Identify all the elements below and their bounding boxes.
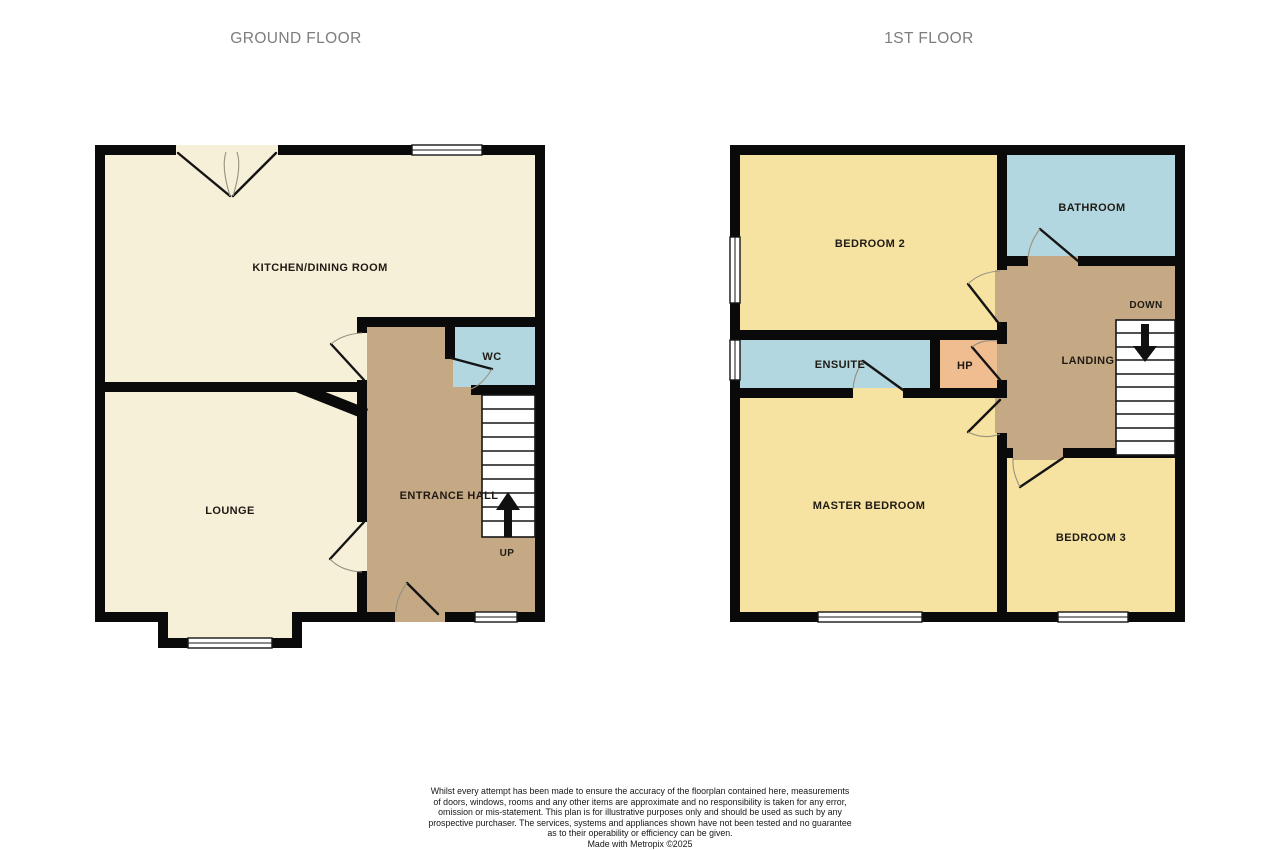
floorplan-canvas: KITCHEN/DINING ROOM LOUNGE ENTRANCE HALL… <box>0 0 1280 845</box>
room-label-kitchen: KITCHEN/DINING ROOM <box>252 262 387 274</box>
interior-wall <box>357 380 367 522</box>
room-lounge <box>105 392 357 612</box>
interior-wall <box>357 317 367 333</box>
interior-wall <box>740 388 853 398</box>
disclaimer-credit: Made with Metropix ©2025 <box>0 839 1280 850</box>
interior-wall <box>1005 256 1028 266</box>
stairs-down-label: DOWN <box>1129 300 1162 311</box>
room-label-entrance-hall: ENTRANCE HALL <box>400 490 499 502</box>
interior-wall <box>997 433 1007 612</box>
interior-wall <box>445 327 455 359</box>
bathroom-door-gap <box>1028 256 1078 268</box>
interior-wall <box>740 330 1007 340</box>
room-label-bedroom2: BEDROOM 2 <box>835 238 905 250</box>
room-label-lounge: LOUNGE <box>205 505 254 517</box>
hp-door-gap <box>997 344 1007 380</box>
interior-wall <box>1078 256 1175 266</box>
disclaimer-line: Whilst every attempt has been made to en… <box>0 786 1280 797</box>
bedroom3-door-gap <box>1013 448 1063 460</box>
room-label-hp: HP <box>957 360 973 372</box>
staircase-up <box>482 395 535 537</box>
room-label-master-bedroom: MASTER BEDROOM <box>813 500 926 512</box>
french-door-gap <box>176 145 278 155</box>
window <box>730 340 740 380</box>
room-label-bathroom: BATHROOM <box>1058 202 1125 214</box>
window <box>1058 612 1128 622</box>
room-label-wc: WC <box>482 351 501 363</box>
interior-wall <box>105 382 305 392</box>
interior-wall <box>997 155 1007 270</box>
room-label-bedroom3: BEDROOM 3 <box>1056 532 1126 544</box>
disclaimer-line: omission or mis-statement. This plan is … <box>0 807 1280 818</box>
interior-wall <box>903 388 1007 398</box>
interior-wall <box>997 380 1007 398</box>
bay-window <box>188 638 272 648</box>
interior-wall <box>357 571 367 612</box>
disclaimer-text: Whilst every attempt has been made to en… <box>0 786 1280 850</box>
staircase-down <box>1116 320 1175 455</box>
window <box>475 612 517 622</box>
bedroom2-door-gap <box>995 270 1007 322</box>
room-label-ensuite: ENSUITE <box>815 359 865 371</box>
disclaimer-line: as to their operability or efficiency ca… <box>0 828 1280 839</box>
interior-wall <box>357 317 535 327</box>
bay-floor <box>168 612 292 638</box>
disclaimer-line: of doors, windows, rooms and any other i… <box>0 797 1280 808</box>
window <box>730 237 740 303</box>
interior-wall <box>930 340 940 388</box>
disclaimer-line: prospective purchaser. The services, sys… <box>0 818 1280 829</box>
window <box>412 145 482 155</box>
room-label-landing: LANDING <box>1062 355 1115 367</box>
first-floor-plan: BEDROOM 2 BATHROOM ENSUITE HP LANDING DO… <box>730 145 1185 622</box>
interior-wall <box>471 385 535 395</box>
stairs-up-label: UP <box>500 548 515 559</box>
interior-wall <box>997 448 1013 458</box>
ensuite-door-gap <box>853 388 903 400</box>
window <box>818 612 922 622</box>
ground-floor-plan: KITCHEN/DINING ROOM LOUNGE ENTRANCE HALL… <box>95 145 545 648</box>
